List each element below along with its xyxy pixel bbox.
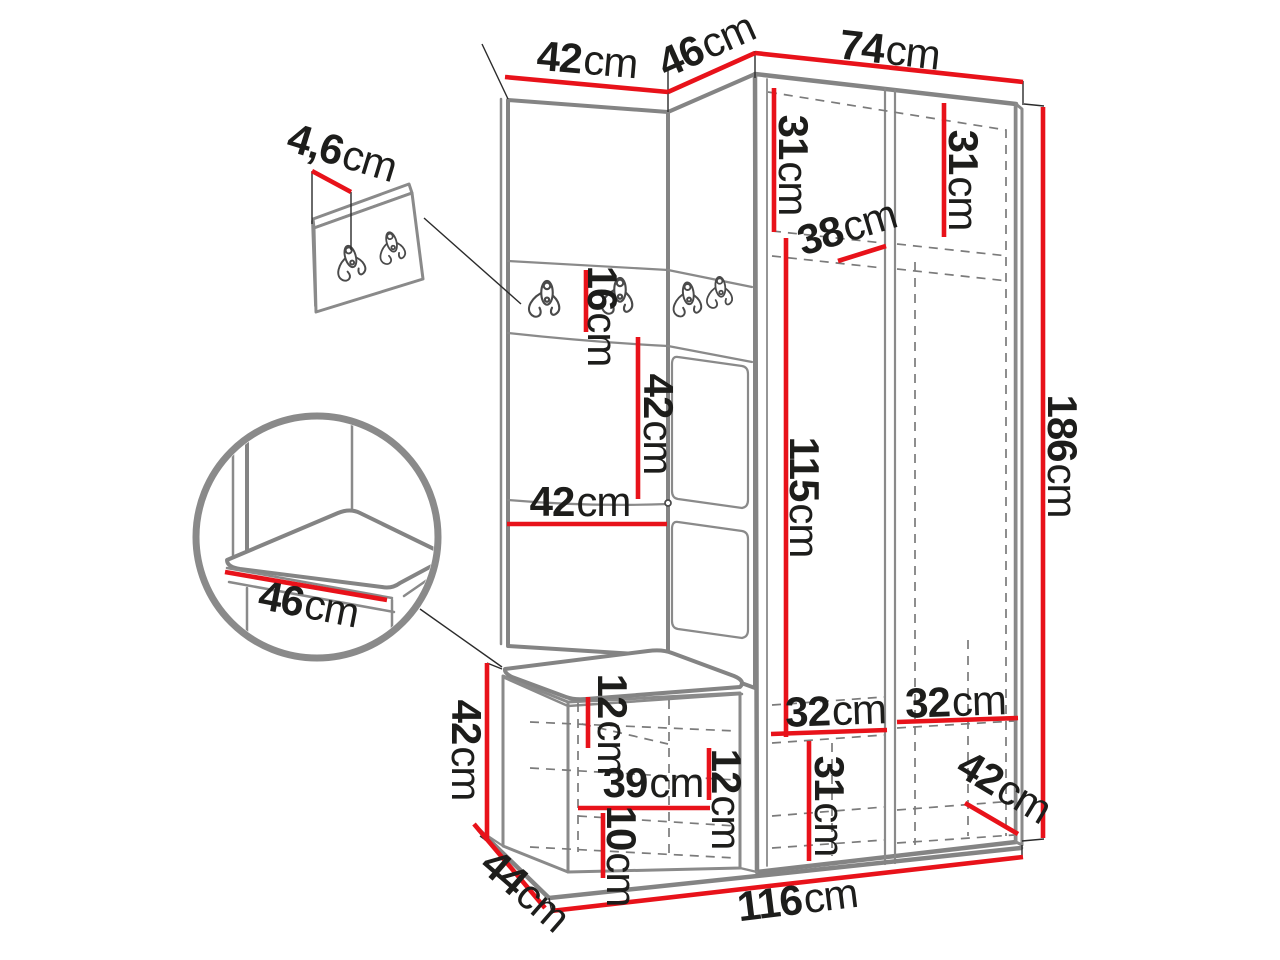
furniture-dimension-diagram: 4,6cm 42cm 46cm 74cm 31cm 31cm 38cm 16cm… — [0, 0, 1280, 960]
bench-left-face — [503, 676, 568, 872]
dim-label-wardrobe-width: 74cm — [837, 21, 942, 79]
dim-label-shoe-shelf-spacing: 12cm — [703, 749, 750, 850]
dim-label-bottom-shelf-height: 10cm — [598, 806, 645, 907]
dim-label-bench-height: 42cm — [443, 700, 490, 801]
wardrobe-side — [1016, 104, 1022, 845]
dim-label-wardrobe-bottom-left-width: 32cm — [784, 685, 886, 735]
dim-label-panel-depth: 4,6cm — [282, 113, 402, 191]
wall-hook-panel — [312, 184, 423, 312]
dim-label-wardrobe-right-shelf-height: 31cm — [940, 130, 987, 231]
dim-label-wardrobe-bottom-compartment-height: 31cm — [806, 756, 853, 857]
dim-label-wardrobe-interior-height: 115cm — [781, 437, 828, 558]
dim-label-total-height: 186cm — [1039, 394, 1086, 517]
upholstery-button — [665, 500, 671, 506]
detail-leader-line — [420, 609, 502, 667]
dim-label-mid-panel-height: 42cm — [635, 374, 682, 475]
dim-label-hook-panel-height: 16cm — [579, 266, 626, 367]
dim-label-left-cabinet-width: 42cm — [535, 32, 639, 88]
dim-label-mid-panel-width: 42cm — [530, 478, 631, 525]
dim-label-shoe-shelf-width: 39cm — [603, 759, 704, 806]
panel-front-face — [314, 193, 423, 312]
dim-label-wardrobe-bottom-right-width: 32cm — [904, 676, 1006, 726]
dim-label-wardrobe-left-shelf-height: 31cm — [770, 115, 817, 216]
diagram-canvas: 4,6cm 42cm 46cm 74cm 31cm 31cm 38cm 16cm… — [0, 0, 1280, 960]
